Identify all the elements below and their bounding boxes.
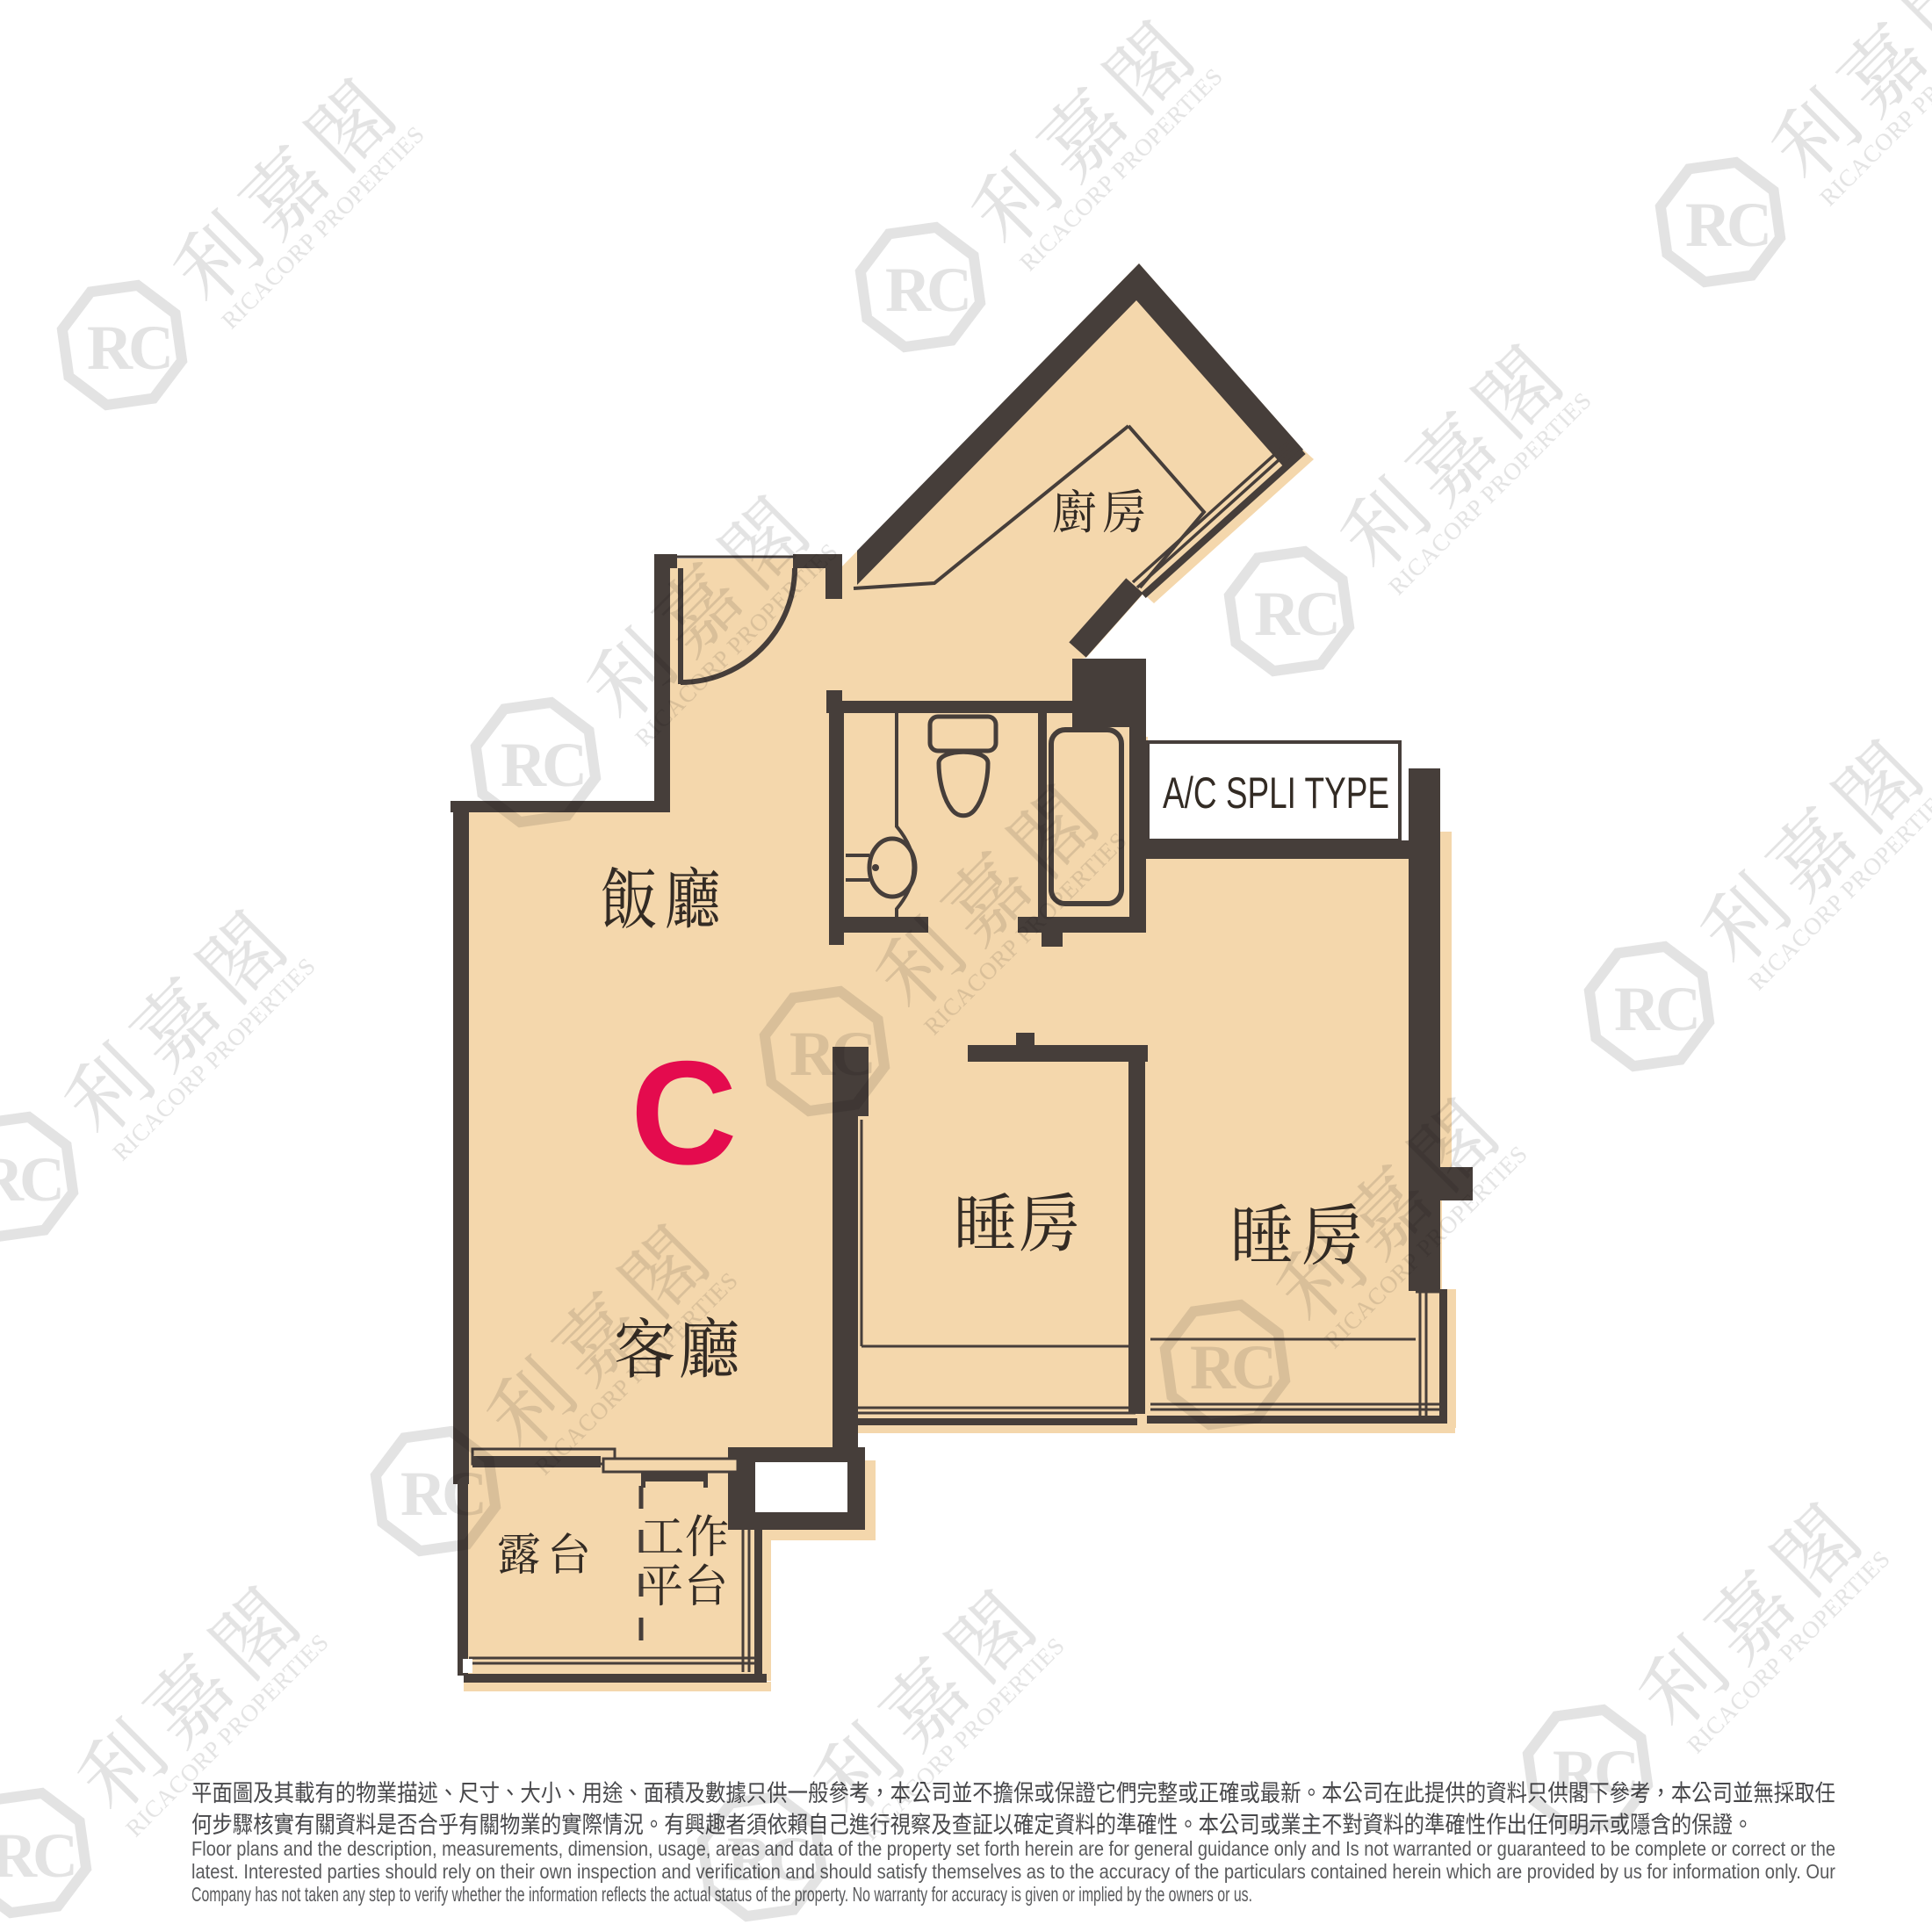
svg-text:C: C (631, 1030, 737, 1195)
svg-text:A/C SPLI TYPE: A/C SPLI TYPE (1163, 768, 1389, 818)
svg-text:latest. Interested parties sho: latest. Interested parties should rely o… (191, 1860, 1835, 1883)
svg-text:Floor plans and the descriptio: Floor plans and the description, measure… (191, 1837, 1835, 1860)
